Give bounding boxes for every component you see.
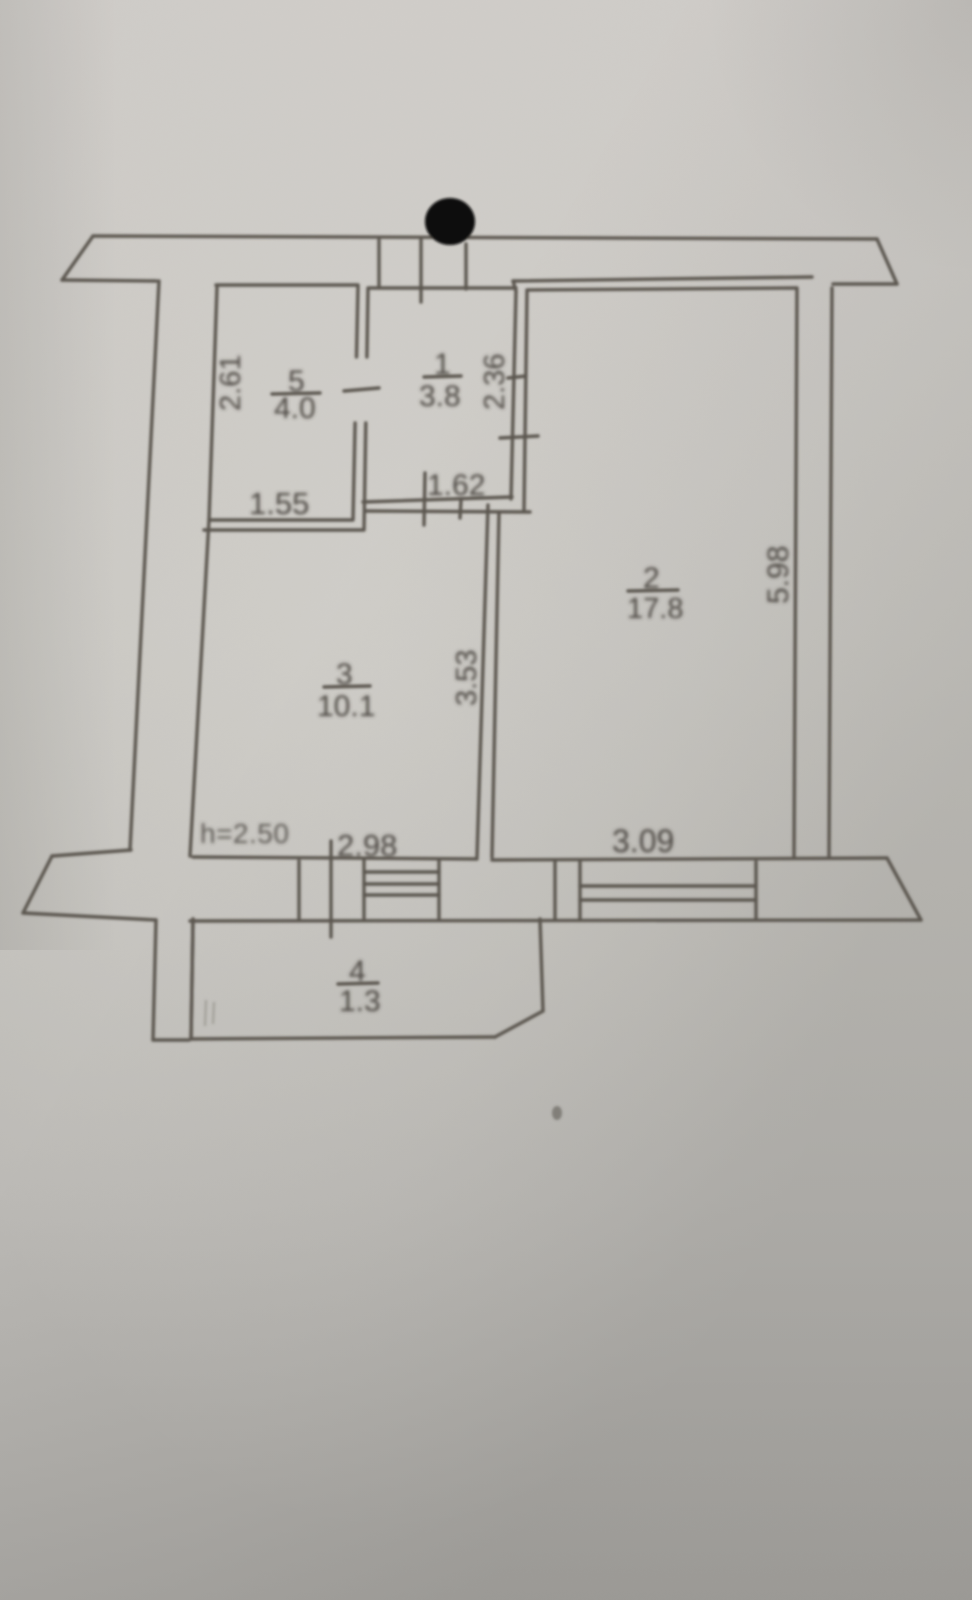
svg-text:2.36: 2.36 xyxy=(479,354,511,410)
svg-text:2.61: 2.61 xyxy=(215,355,247,411)
svg-text:1.62: 1.62 xyxy=(427,469,485,502)
svg-text:3.09: 3.09 xyxy=(612,823,674,859)
svg-text:10.1: 10.1 xyxy=(317,690,375,723)
svg-text:5.98: 5.98 xyxy=(762,546,795,604)
svg-text:1.55: 1.55 xyxy=(249,486,309,521)
svg-text:h=2.50: h=2.50 xyxy=(200,818,289,849)
svg-text:17.8: 17.8 xyxy=(627,593,683,625)
svg-text:4.0: 4.0 xyxy=(274,392,316,425)
svg-text:3.53: 3.53 xyxy=(451,650,483,706)
svg-text:3.8: 3.8 xyxy=(419,380,461,413)
svg-text:1.3: 1.3 xyxy=(339,985,381,1018)
